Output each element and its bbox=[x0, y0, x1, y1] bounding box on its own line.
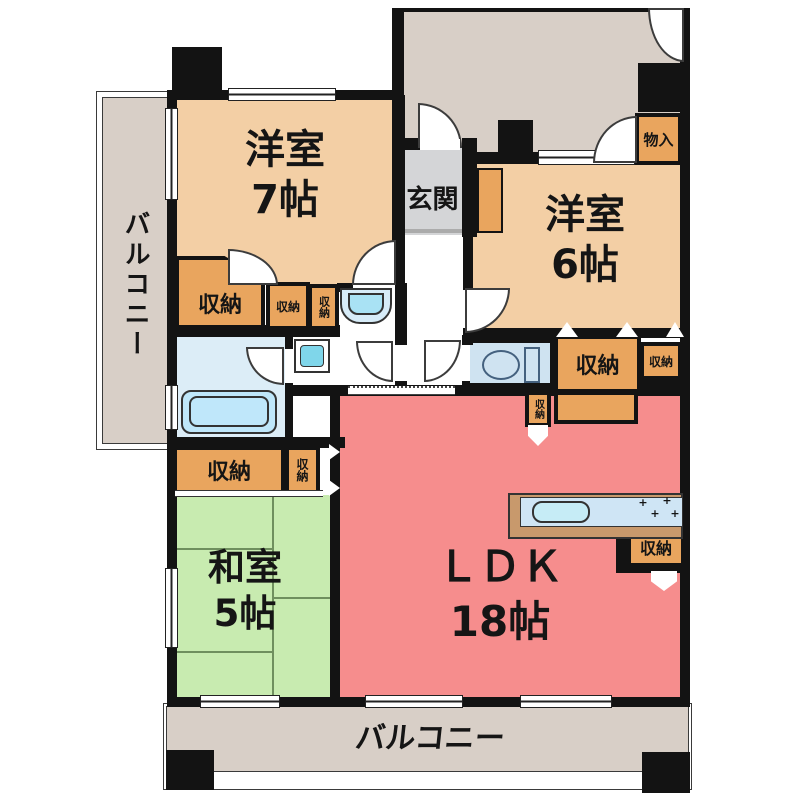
room-size: 7帖 bbox=[200, 175, 370, 225]
ldk-sliding-door bbox=[348, 386, 455, 395]
washing-machine-drum bbox=[300, 345, 324, 367]
window bbox=[165, 108, 178, 200]
room-size: 5帖 bbox=[165, 591, 325, 637]
stove-burner-icon: + bbox=[668, 507, 682, 521]
floor-plan: バルコニー バルコニー bbox=[0, 0, 800, 800]
tatami-line bbox=[175, 651, 273, 653]
window bbox=[365, 695, 463, 708]
storage-box: 収納 bbox=[173, 446, 285, 494]
sliding-door bbox=[175, 490, 323, 497]
storage-box bbox=[554, 391, 638, 424]
entrance-step-line bbox=[402, 229, 463, 233]
window bbox=[520, 695, 612, 708]
bathtub-inner bbox=[189, 396, 269, 427]
wall bbox=[462, 335, 470, 345]
pillar bbox=[498, 120, 533, 164]
washroom-door bbox=[356, 341, 393, 382]
storage-label: 収納 bbox=[207, 454, 251, 486]
storage-box: 収納 bbox=[525, 391, 551, 427]
storage-label: 収納 bbox=[575, 348, 619, 380]
window bbox=[200, 695, 280, 708]
japanese-room-label: 和室 5帖 bbox=[165, 545, 325, 638]
pillar bbox=[166, 750, 214, 790]
wall bbox=[462, 335, 558, 343]
storage-box: 収納 bbox=[640, 342, 682, 380]
pillar bbox=[642, 752, 690, 793]
pillar bbox=[638, 63, 690, 112]
vanity-bowl bbox=[348, 293, 384, 315]
window bbox=[228, 88, 336, 101]
entrance-label: 玄関 bbox=[402, 184, 463, 217]
storage-box: 収納 bbox=[266, 282, 310, 330]
room-name: 洋室 bbox=[200, 125, 370, 175]
western-room-6-label: 洋室 6帖 bbox=[500, 190, 670, 290]
toilet-door bbox=[424, 340, 461, 382]
toilet-tank bbox=[524, 347, 540, 383]
wall bbox=[395, 8, 685, 12]
wall bbox=[330, 385, 340, 700]
window bbox=[165, 385, 178, 430]
storage-box: 収納 bbox=[308, 284, 339, 330]
room-name: ＬＤＫ bbox=[410, 540, 590, 595]
kitchen-sink-icon bbox=[532, 501, 590, 523]
toilet-icon bbox=[482, 350, 520, 380]
storage-label: 収納 bbox=[276, 298, 300, 315]
wall bbox=[285, 335, 293, 349]
storage-box: 収納 bbox=[554, 335, 641, 393]
wall bbox=[640, 378, 683, 392]
storage-label: 収納 bbox=[316, 296, 332, 318]
wall bbox=[463, 237, 473, 290]
closet-label: 物入 bbox=[643, 129, 673, 150]
closet-box: 物入 bbox=[635, 113, 682, 165]
wall bbox=[395, 283, 407, 345]
storage-label: 収納 bbox=[531, 399, 546, 419]
wall bbox=[392, 138, 420, 150]
pillar bbox=[172, 47, 222, 95]
wall bbox=[392, 8, 404, 100]
stove-burner-icon: + bbox=[648, 507, 662, 521]
storage-label: 収納 bbox=[294, 458, 311, 482]
storage-box: 収納 bbox=[285, 446, 320, 494]
room-size: 18帖 bbox=[410, 595, 590, 650]
room-name: 洋室 bbox=[500, 190, 670, 240]
storage-label: 収納 bbox=[649, 353, 673, 370]
balcony-left-label: バルコニー bbox=[119, 165, 151, 405]
ldk-label: ＬＤＫ 18帖 bbox=[410, 540, 590, 649]
stove-burner-icon: + bbox=[660, 494, 674, 508]
room-size: 6帖 bbox=[500, 240, 670, 290]
room-name: 和室 bbox=[165, 545, 325, 591]
storage-label: 収納 bbox=[198, 287, 242, 319]
door-gap bbox=[420, 139, 460, 150]
western-room-7-label: 洋室 7帖 bbox=[200, 125, 370, 225]
balcony-bottom-label: バルコニー bbox=[328, 720, 532, 758]
